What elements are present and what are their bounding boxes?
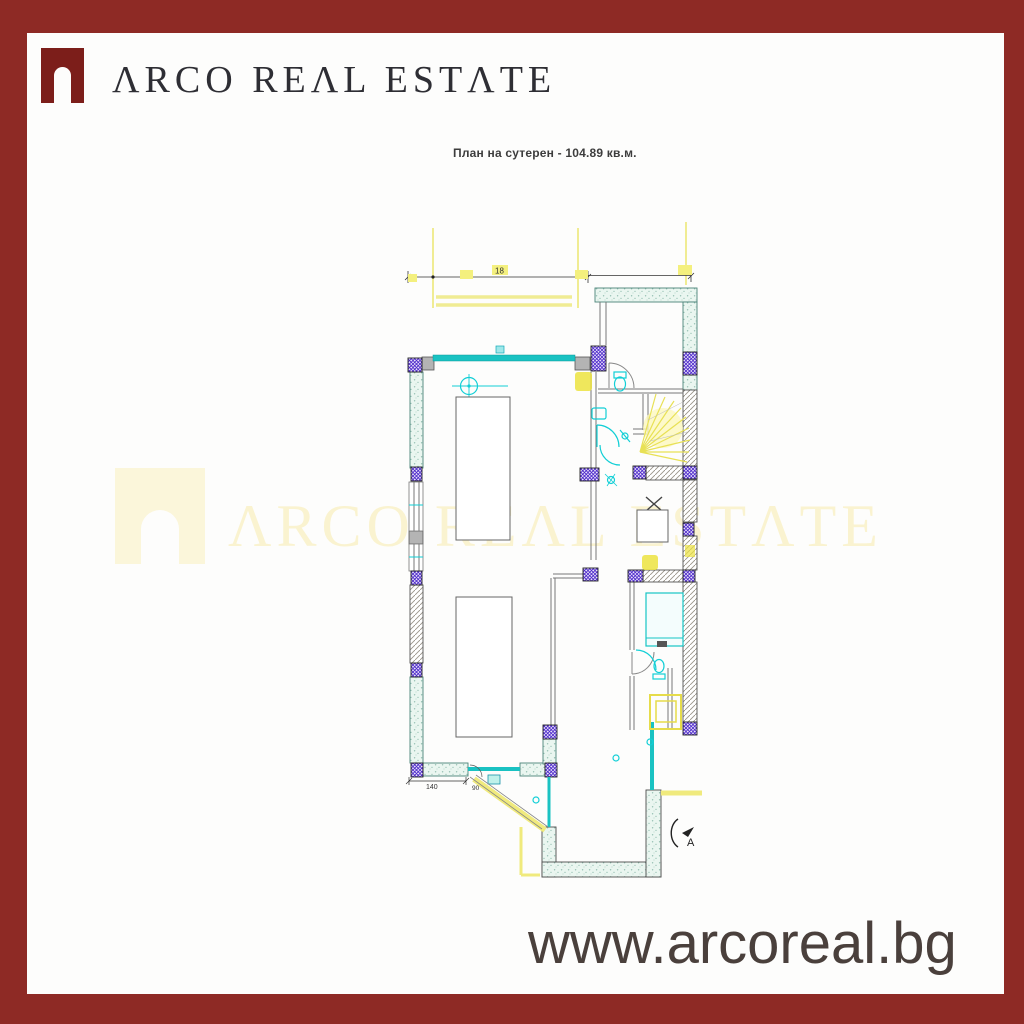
section-marker: A xyxy=(671,819,695,849)
brand-name: ΛRCO REΛL ESTΛTE xyxy=(112,58,556,102)
dimension-lines: 18 xyxy=(405,265,694,283)
dim-label-top: 18 xyxy=(495,267,504,276)
dim-label-140: 140 xyxy=(426,784,438,791)
arch-cutout xyxy=(141,510,179,564)
arch-logo-watermark-icon xyxy=(115,468,205,564)
section-marker-label: A xyxy=(687,837,695,849)
bed xyxy=(646,593,683,647)
layout-rects xyxy=(456,397,512,737)
arch-logo-icon xyxy=(41,48,84,103)
dim-label-90: 90 xyxy=(472,785,480,792)
basement-floor-plan: 18 xyxy=(400,215,705,895)
listing-image: ΛRCO REΛL ESTΛTE xyxy=(0,0,1024,1024)
plan-title: План на сутерен - 104.89 кв.м. xyxy=(453,146,637,160)
shaft xyxy=(637,497,668,542)
arch-cutout xyxy=(54,67,71,103)
website-url: www.arcoreal.bg xyxy=(528,910,957,977)
